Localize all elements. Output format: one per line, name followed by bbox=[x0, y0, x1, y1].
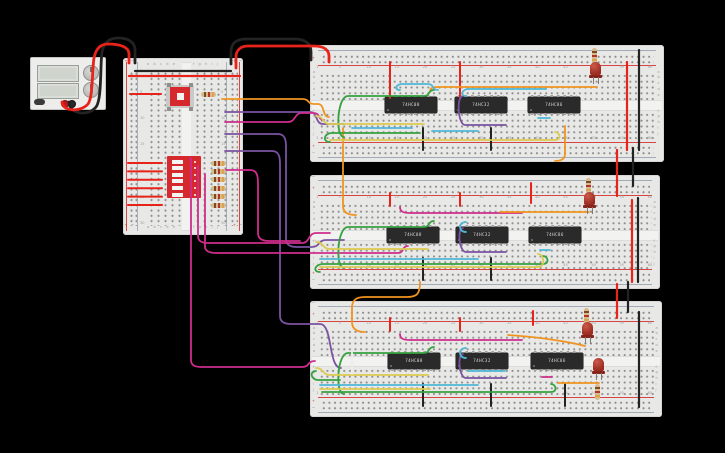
led-lead bbox=[592, 207, 593, 214]
resistor[interactable] bbox=[211, 194, 226, 199]
led-flange bbox=[583, 205, 596, 208]
wire-yellow-b2-long[interactable] bbox=[320, 254, 543, 267]
wire-cyan-b3-hook[interactable] bbox=[460, 348, 466, 358]
led-bulb bbox=[582, 322, 593, 335]
led-lead bbox=[596, 373, 597, 380]
wire-board1-power-red[interactable] bbox=[236, 46, 329, 68]
led-lead bbox=[590, 337, 591, 344]
led-lead bbox=[585, 337, 586, 344]
wire-orange-b1-down[interactable] bbox=[555, 126, 565, 161]
wire-board1-power-black[interactable] bbox=[231, 39, 311, 64]
resistor[interactable] bbox=[201, 92, 216, 97]
wire-yellow-b2-a[interactable] bbox=[316, 242, 428, 249]
led-lead bbox=[598, 77, 599, 84]
resistor[interactable] bbox=[211, 169, 226, 174]
wire-orange-input-b1[interactable] bbox=[222, 99, 329, 117]
led-flange bbox=[589, 75, 602, 78]
wire-green-b2-s[interactable] bbox=[338, 221, 434, 268]
led-board1[interactable] bbox=[590, 62, 601, 78]
wire-cyan-b1-row[interactable] bbox=[462, 89, 546, 96]
led-board3-sum[interactable] bbox=[582, 322, 593, 338]
led-lead bbox=[587, 207, 588, 214]
wire-magenta-input-b3[interactable] bbox=[191, 158, 315, 367]
wire-orange-b1-to-b2[interactable] bbox=[343, 128, 356, 215]
led-lead bbox=[593, 77, 594, 84]
led-bulb bbox=[590, 62, 601, 75]
led-flange bbox=[592, 371, 605, 374]
led-bulb bbox=[584, 192, 595, 205]
led-lead bbox=[601, 373, 602, 380]
resistor[interactable] bbox=[211, 177, 226, 182]
led-board2[interactable] bbox=[584, 192, 595, 208]
led-bulb bbox=[593, 358, 604, 371]
led-resistor[interactable] bbox=[595, 384, 600, 400]
wire-supply-lead-black[interactable] bbox=[69, 38, 135, 113]
wire-green-b1-s[interactable] bbox=[338, 90, 434, 137]
wire-yellow-b3-a[interactable] bbox=[316, 368, 428, 375]
wire-purple-b1-ic2-hook[interactable] bbox=[459, 96, 506, 125]
wire-yellow-b1-a[interactable] bbox=[316, 116, 424, 124]
wire-magenta-b3-row[interactable] bbox=[400, 334, 522, 340]
resistor[interactable] bbox=[211, 161, 226, 166]
resistor[interactable] bbox=[211, 186, 226, 191]
wire-orange-b2-to-b3[interactable] bbox=[352, 282, 420, 332]
wire-layer bbox=[0, 0, 725, 453]
wire-cyan-b2-hook[interactable] bbox=[460, 222, 466, 232]
resistor[interactable] bbox=[211, 203, 226, 208]
wire-magenta-input-b1[interactable] bbox=[225, 113, 324, 122]
led-flange bbox=[581, 335, 594, 338]
led-board3-carry[interactable] bbox=[593, 358, 604, 374]
circuit-canvas: a b c d ef g h i ja b c d ef g h i j1155… bbox=[0, 0, 725, 453]
wire-supply-lead-red[interactable] bbox=[62, 44, 129, 110]
wire-magenta-input-b2-c[interactable] bbox=[225, 170, 300, 241]
